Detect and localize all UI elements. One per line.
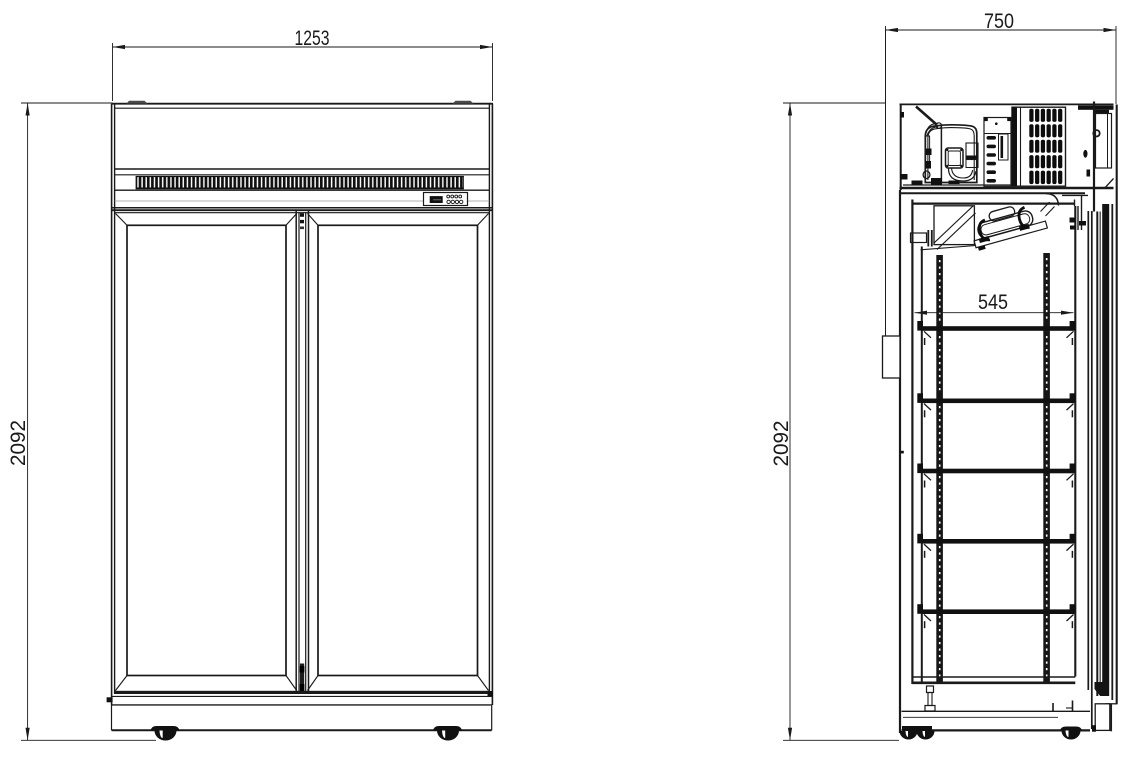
svg-text:1253: 1253 xyxy=(295,27,330,50)
svg-text:750: 750 xyxy=(984,10,1014,33)
svg-text:545: 545 xyxy=(978,291,1008,314)
svg-text:2092: 2092 xyxy=(7,420,30,466)
svg-text:2092: 2092 xyxy=(770,421,793,467)
